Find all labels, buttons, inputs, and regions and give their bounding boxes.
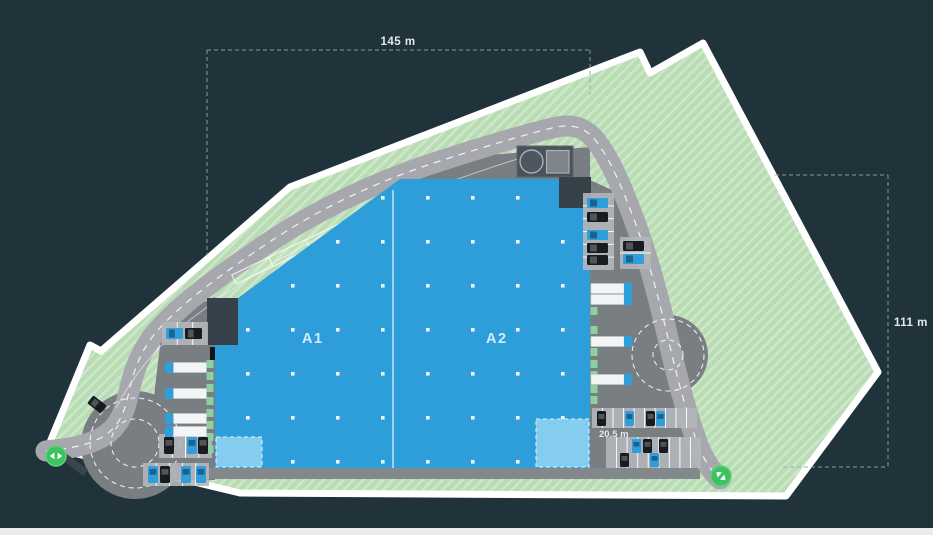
car-window [645, 442, 651, 447]
car [196, 466, 206, 483]
truck-trailer [591, 375, 624, 385]
car-window [198, 469, 205, 475]
truck-trailer [174, 427, 207, 437]
car-window [590, 200, 597, 207]
car-window [590, 214, 597, 221]
truck-cab [624, 283, 632, 294]
car [166, 328, 183, 339]
truck [591, 294, 632, 305]
car [659, 439, 668, 453]
car [587, 255, 608, 265]
truck-trailer [174, 414, 207, 424]
truck-cab [624, 294, 632, 305]
truck-trailer [174, 363, 207, 373]
dock-door [591, 396, 598, 404]
car [198, 437, 208, 454]
car-window [188, 330, 194, 338]
car-window [626, 243, 633, 250]
car [587, 198, 608, 208]
parking-row [592, 408, 697, 428]
truck [165, 362, 207, 373]
car [160, 466, 170, 483]
dock-detail-bar [210, 347, 215, 360]
car [643, 439, 652, 453]
car-window [652, 456, 658, 461]
dock-door [207, 372, 214, 380]
dock-door [591, 326, 598, 334]
truck-trailer [174, 389, 207, 399]
bottom-strip [0, 528, 933, 535]
car [623, 254, 644, 264]
car [587, 230, 608, 240]
car-window [590, 232, 597, 239]
car [623, 241, 644, 251]
car-window [166, 440, 173, 446]
site-plan-page: A1 A2 145 m 111 m 20.5 m [0, 0, 933, 535]
car-window [661, 442, 667, 447]
expansion-zone-a2 [536, 419, 589, 467]
car-window [590, 257, 597, 264]
car [181, 466, 191, 483]
dock-door [207, 384, 214, 392]
car [620, 453, 629, 467]
car-window [626, 256, 633, 263]
car [187, 437, 197, 454]
car-window [162, 469, 169, 475]
dimension-right-label: 111 m [894, 317, 928, 329]
truck [591, 283, 632, 294]
truck-cab [165, 413, 173, 424]
truck [165, 413, 207, 424]
car [650, 453, 659, 467]
car [625, 411, 634, 426]
car-window [627, 414, 633, 419]
car [587, 243, 608, 253]
car-window [169, 330, 175, 338]
car-window [590, 245, 597, 252]
car [656, 411, 665, 426]
expansion-zone-a1 [216, 437, 262, 467]
truck-trailer [591, 284, 624, 294]
truck-cab [165, 426, 173, 437]
hall-a1-label: A1 [302, 331, 324, 347]
truck [165, 426, 207, 437]
car [185, 328, 202, 339]
tank-pad [517, 146, 573, 177]
office-block-northwest [207, 298, 238, 345]
truck-trailer [591, 337, 624, 347]
car [597, 411, 606, 426]
hall-a2-label: A2 [486, 331, 508, 347]
dock-door [207, 421, 214, 429]
dock-door [591, 360, 598, 368]
dock-door [591, 348, 598, 356]
yard-south-strip [150, 468, 700, 479]
car [587, 212, 608, 222]
truck-trailer [591, 295, 624, 305]
sprinkler-tank [520, 150, 543, 173]
car-window [189, 440, 196, 446]
car-window [200, 440, 207, 446]
car-window [150, 469, 157, 475]
dock-door [591, 307, 598, 315]
car-window [183, 469, 190, 475]
truck [591, 374, 632, 385]
car-window [599, 414, 605, 419]
dock-door [207, 397, 214, 405]
truck-cab [165, 388, 173, 399]
truck [165, 388, 207, 399]
dock-door [207, 409, 214, 417]
truck-cab [624, 336, 632, 347]
truck-cab [165, 362, 173, 373]
car [148, 466, 158, 483]
dimension-top-label: 145 m [380, 36, 415, 48]
entrance-marker-west [46, 446, 66, 466]
car-window [622, 456, 628, 461]
car [632, 439, 641, 453]
dock-door [207, 360, 214, 368]
truck [591, 336, 632, 347]
dock-door [591, 385, 598, 393]
car-window [658, 414, 664, 419]
car-window [634, 442, 640, 447]
dimension-parking-label: 20.5 m [599, 429, 629, 440]
pump-house [547, 151, 570, 174]
car [164, 437, 174, 454]
car [646, 411, 655, 426]
truck-cab [624, 374, 632, 385]
site-plan-canvas: A1 A2 145 m 111 m 20.5 m [0, 0, 933, 535]
car-window [648, 414, 654, 419]
